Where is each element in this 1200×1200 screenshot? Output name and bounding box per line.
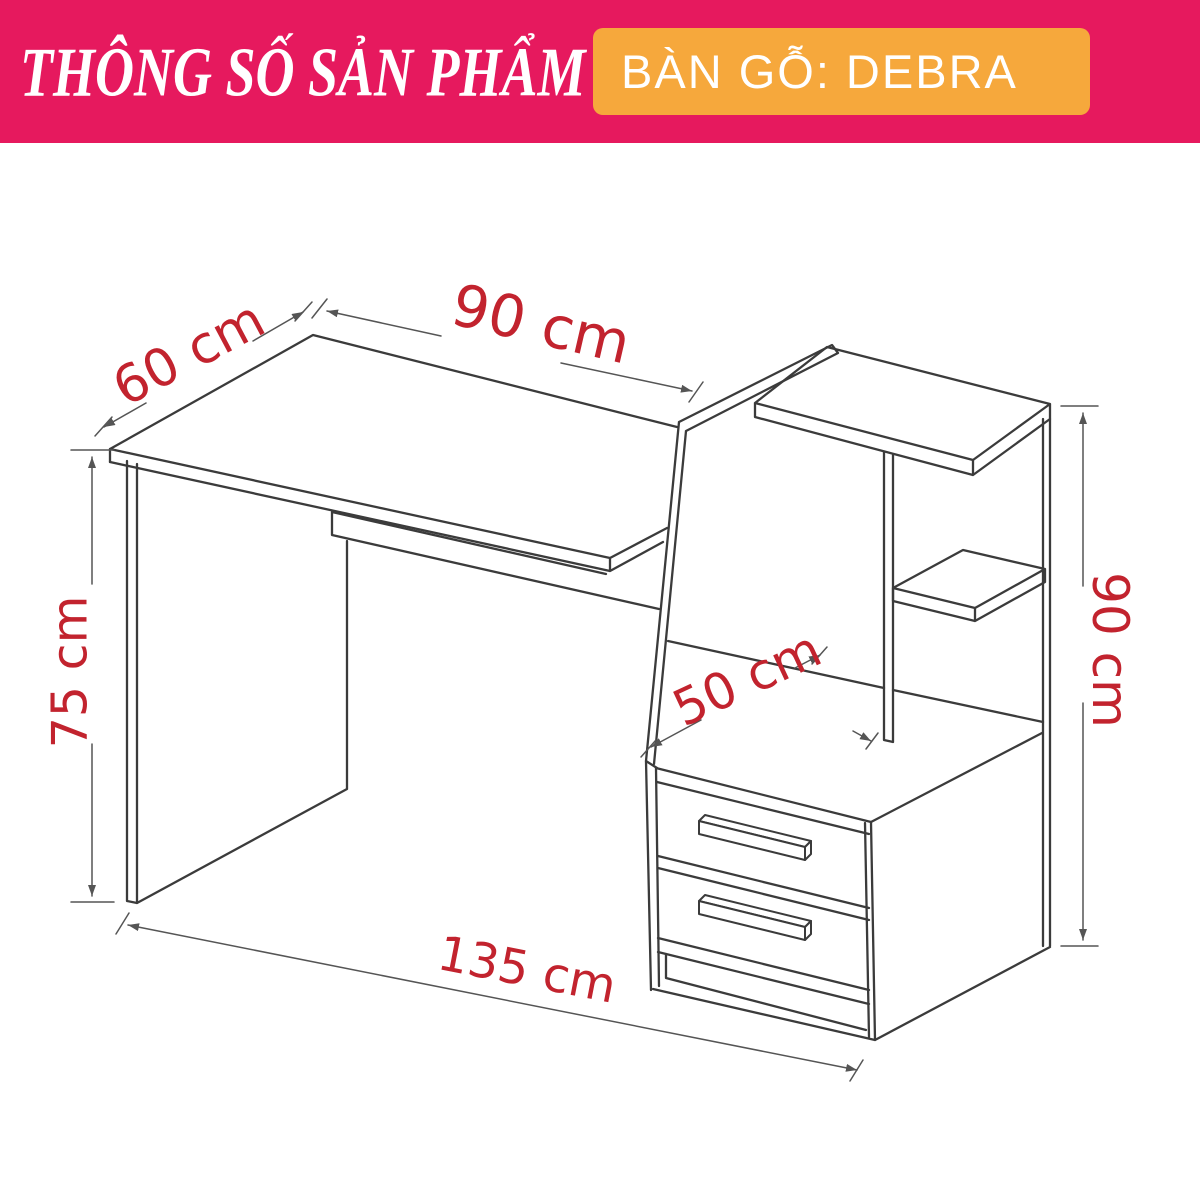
dimension-total-width: 135 cm [116,913,863,1081]
small-shelf [893,550,1045,621]
desk-outline [110,335,677,903]
top-shelf [755,347,1050,475]
dimension-label-total-width: 135 cm [433,925,620,1014]
middle-divider [884,452,893,742]
drawer-handle-top [699,815,811,860]
cabinet-top [646,733,1042,990]
desktop-edge [110,449,667,571]
dimension-label-cabinet-depth: 50 cm [664,620,830,738]
dimension-tick [866,733,878,749]
dimension-shelf-height: 90 cm [1061,406,1139,946]
furniture-diagram: 60 cm 90 cm 75 cm 50 cm 90 cm 1 [0,0,1200,1200]
drawer-cabinet [646,733,1050,1040]
cabinet-base [653,947,1050,1040]
dimension-desk-height: 75 cm [42,450,115,902]
dimension-label-desk-height: 75 cm [42,596,99,749]
dimension-desk-depth: 60 cm [95,289,312,436]
right-side-panel [1043,419,1050,946]
drawer-fronts [657,782,869,1004]
page: THÔNG SỐ SẢN PHẨM BÀN GỖ: DEBRA [0,0,1200,1200]
shelf-unit [646,345,1050,946]
dimension-label-desk-depth: 60 cm [103,289,274,418]
dimension-cabinet-depth: 50 cm [641,620,878,757]
desk-left-panel [127,461,347,903]
dimension-label-desk-width: 90 cm [445,271,636,378]
dimension-label-shelf-height: 90 cm [1081,572,1139,728]
cabinet-right-edge [865,822,875,1040]
dimension-desk-width: 90 cm [312,271,703,402]
